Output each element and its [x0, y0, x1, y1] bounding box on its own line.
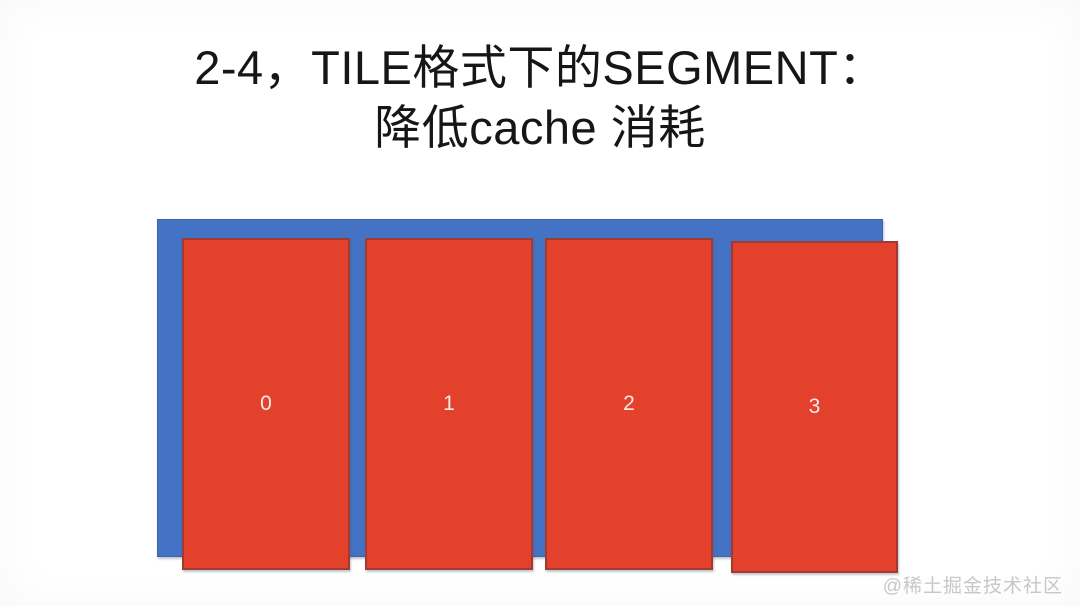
- slide-title-line2: 降低cache 消耗: [0, 98, 1080, 158]
- tile-0: 0: [182, 238, 350, 570]
- tile-3: 3: [731, 241, 898, 573]
- tile-3-label: 3: [809, 395, 821, 419]
- watermark: @稀土掘金技术社区: [883, 571, 1063, 598]
- tile-1: 1: [365, 238, 533, 570]
- slide-title: 2-4，TILE格式下的SEGMENT： 降低cache 消耗: [0, 38, 1080, 158]
- tile-2: 2: [545, 238, 713, 570]
- slide: 2-4，TILE格式下的SEGMENT： 降低cache 消耗 0 1 2 3 …: [0, 0, 1080, 606]
- tile-2-label: 2: [623, 392, 635, 416]
- slide-title-line1: 2-4，TILE格式下的SEGMENT：: [0, 38, 1080, 98]
- tile-0-label: 0: [260, 392, 272, 416]
- tile-1-label: 1: [443, 392, 455, 416]
